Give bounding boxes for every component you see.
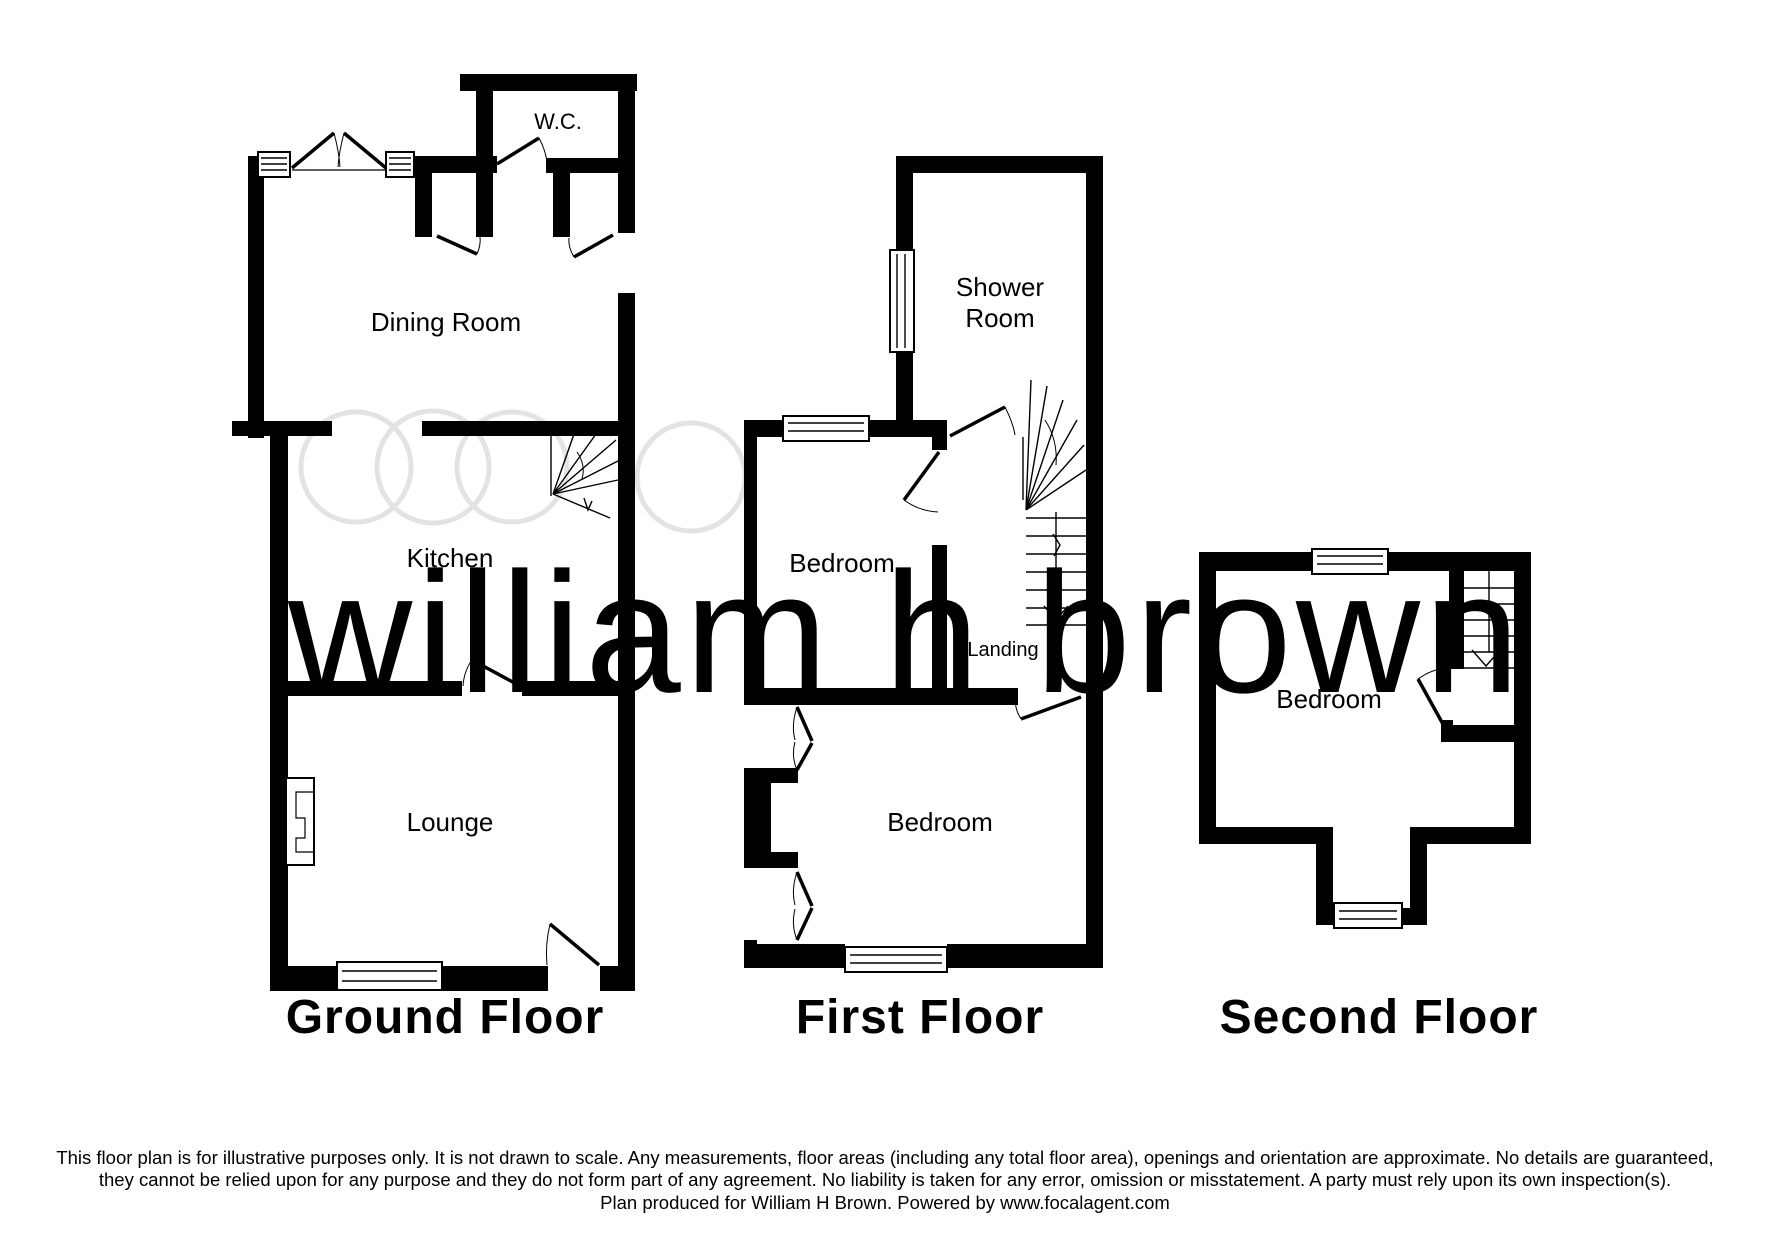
second-floor-title: Second Floor bbox=[1220, 991, 1539, 1044]
disclaimer-line-3: Plan produced for William H Brown. Power… bbox=[600, 1192, 1170, 1213]
room-label-wc: W.C. bbox=[534, 109, 582, 134]
room-label-bedroom-front: Bedroom bbox=[789, 548, 895, 578]
casement-window-icon bbox=[793, 872, 812, 940]
disclaimer: This floor plan is for illustrative purp… bbox=[56, 1147, 1713, 1213]
window-icon bbox=[386, 152, 414, 177]
floor-titles: Ground Floor First Floor Second Floor bbox=[286, 991, 1539, 1044]
disclaimer-line-2: they cannot be relied upon for any purpo… bbox=[99, 1169, 1671, 1190]
room-label-bedroom-rear: Bedroom bbox=[887, 807, 993, 837]
window-icon bbox=[890, 250, 914, 352]
window-icon bbox=[1334, 903, 1402, 928]
room-label-lounge: Lounge bbox=[407, 807, 494, 837]
window-icon bbox=[337, 962, 442, 990]
door-swing-icon bbox=[546, 924, 599, 965]
room-label-shower-line1: Shower bbox=[956, 272, 1044, 302]
first-floor-title: First Floor bbox=[796, 991, 1044, 1044]
door-swing-icon bbox=[497, 138, 547, 164]
french-door-icon bbox=[292, 133, 386, 170]
ground-floor-plan: W.C. Dining Room Kitchen Lounge bbox=[232, 74, 637, 991]
door-swing-icon bbox=[569, 235, 613, 257]
room-label-bedroom-second: Bedroom bbox=[1276, 684, 1382, 714]
door-swing-icon bbox=[437, 236, 480, 254]
disclaimer-line-1: This floor plan is for illustrative purp… bbox=[56, 1147, 1713, 1168]
floorplan-document: william h brown bbox=[0, 0, 1771, 1240]
room-label-dining: Dining Room bbox=[371, 307, 521, 337]
room-label-shower-line2: Room bbox=[965, 303, 1034, 333]
window-icon bbox=[1312, 549, 1388, 574]
ground-floor-title: Ground Floor bbox=[286, 991, 605, 1044]
door-swing-icon bbox=[904, 452, 939, 512]
window-icon bbox=[783, 416, 869, 441]
room-label-kitchen: Kitchen bbox=[407, 543, 494, 573]
window-icon bbox=[258, 152, 290, 177]
fireplace-icon bbox=[286, 778, 314, 865]
floorplan-svg: william h brown bbox=[0, 0, 1771, 1240]
room-label-landing: Landing bbox=[967, 639, 1038, 661]
window-icon bbox=[845, 947, 947, 972]
door-swing-icon bbox=[950, 407, 1015, 436]
